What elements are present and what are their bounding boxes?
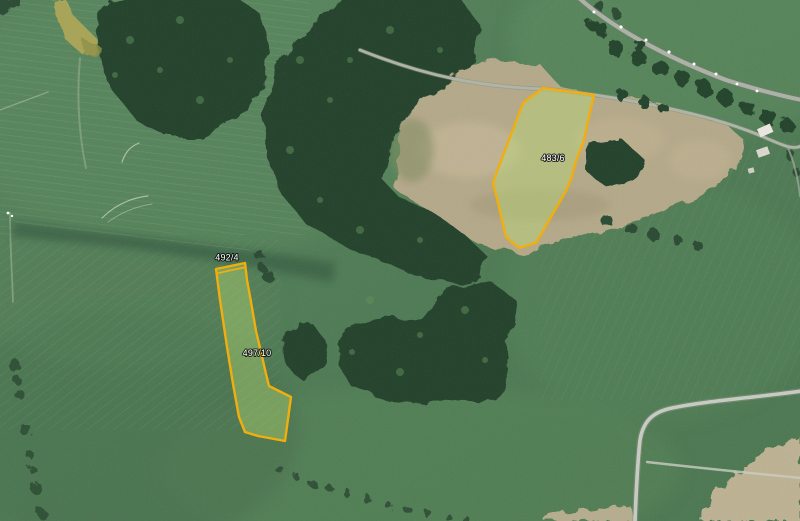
parcel-label-497-10: 497/10 <box>243 348 272 358</box>
parcel-label-483-6: 483/6 <box>541 153 565 163</box>
photo-grain <box>0 0 800 521</box>
aerial-map[interactable]: 483/6 492/4 497/10 <box>0 0 800 521</box>
terrain-imagery <box>0 0 800 521</box>
parcel-label-492-4: 492/4 <box>215 253 239 263</box>
